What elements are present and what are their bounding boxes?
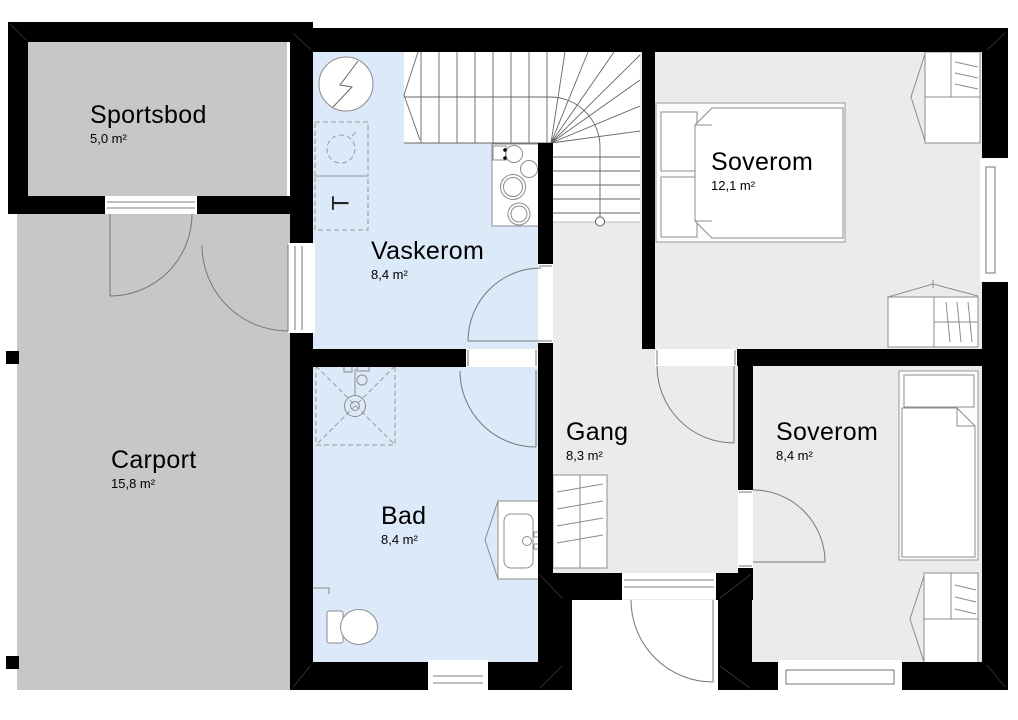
door-opening-vaskerom [538, 264, 553, 343]
single-bed [899, 371, 978, 560]
window-soverom-large [980, 158, 1012, 282]
hallway-wardrobe [553, 475, 607, 568]
double-bed [656, 103, 845, 242]
door-threshold-sportsbod [105, 196, 197, 214]
carport-post [6, 351, 19, 364]
floorplan: T [0, 0, 1018, 720]
carport-post [6, 656, 19, 669]
stair-walkline-start [596, 217, 605, 226]
door-threshold-entrance [622, 573, 716, 599]
door-opening-bad [466, 349, 538, 367]
room-sportsbod-floor [28, 42, 287, 198]
laundry-sink [492, 144, 540, 226]
floorplan-svg: T [0, 0, 1018, 720]
door-opening-soverom-small [738, 490, 753, 568]
window-bad [428, 660, 488, 696]
room-carport-floor [17, 213, 290, 690]
door-threshold-vaskerom-carport [288, 243, 315, 333]
door-opening-soverom-large [655, 349, 737, 366]
window-soverom-small [778, 660, 902, 702]
entrance-porch [553, 600, 718, 695]
dryer-label: T [328, 195, 355, 210]
water-heater-icon [319, 57, 373, 111]
